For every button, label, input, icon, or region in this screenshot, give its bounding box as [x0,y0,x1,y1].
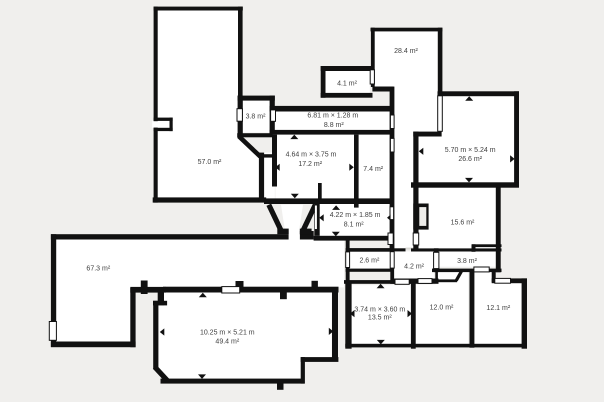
svg-text:4.64 m × 3.75 m: 4.64 m × 3.75 m [286,151,337,158]
svg-text:7.4 m²: 7.4 m² [363,166,384,173]
svg-text:4.2 m²: 4.2 m² [404,263,425,270]
svg-text:12.0 m²: 12.0 m² [430,305,454,312]
svg-text:26.6 m²: 26.6 m² [458,156,482,163]
svg-text:49.4 m²: 49.4 m² [215,338,239,345]
svg-text:8.8 m²: 8.8 m² [324,122,345,129]
svg-text:4.22 m × 1.85 m: 4.22 m × 1.85 m [330,212,381,219]
svg-text:3.74 m × 3.60 m: 3.74 m × 3.60 m [354,306,405,313]
svg-text:17.2 m²: 17.2 m² [298,161,322,168]
svg-text:4.1 m²: 4.1 m² [337,81,358,88]
svg-text:57.0 m²: 57.0 m² [198,159,222,166]
svg-text:10.25 m × 5.21 m: 10.25 m × 5.21 m [200,330,255,337]
svg-text:2.6 m²: 2.6 m² [359,258,380,265]
svg-text:12.1 m²: 12.1 m² [486,305,510,312]
svg-text:28.4 m²: 28.4 m² [394,48,418,55]
svg-text:3.8 m²: 3.8 m² [457,258,478,265]
svg-text:67.3 m²: 67.3 m² [86,266,110,273]
svg-text:5.70 m × 5.24 m: 5.70 m × 5.24 m [445,147,496,154]
svg-text:3.8 m²: 3.8 m² [246,114,267,121]
svg-text:13.5 m²: 13.5 m² [368,315,392,322]
svg-text:6.81 m × 1.28 m: 6.81 m × 1.28 m [307,112,358,119]
svg-text:8.1 m²: 8.1 m² [344,221,365,228]
svg-text:15.6 m²: 15.6 m² [451,219,475,226]
